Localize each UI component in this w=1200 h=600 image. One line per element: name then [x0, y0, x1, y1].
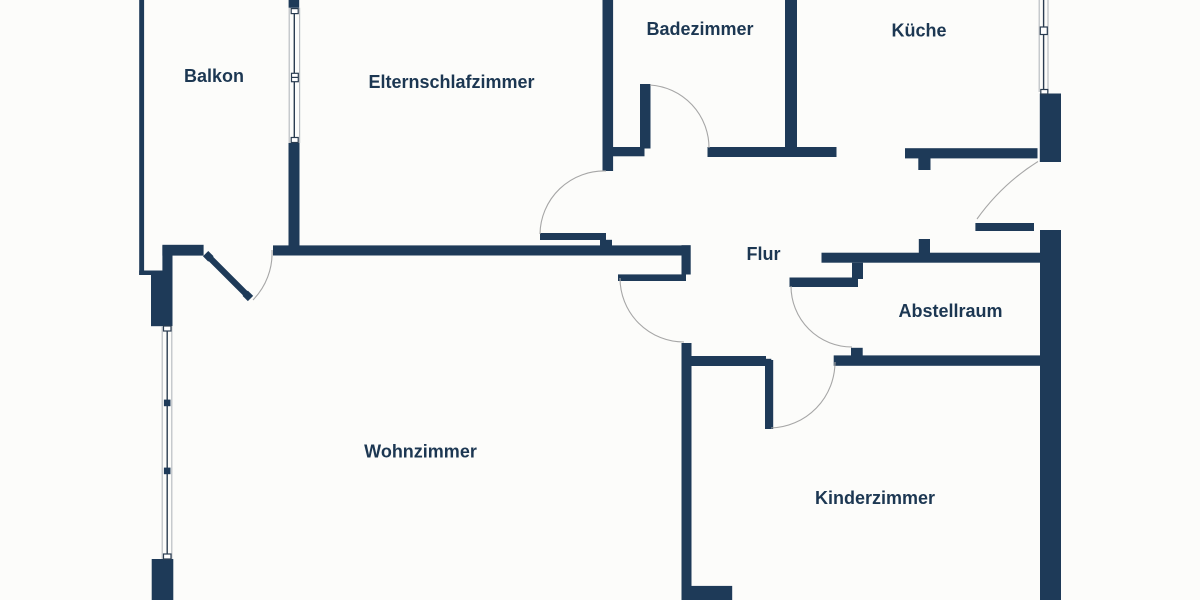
- svg-text:Kinderzimmer: Kinderzimmer: [815, 488, 935, 508]
- svg-text:Küche: Küche: [891, 21, 946, 41]
- svg-text:Balkon: Balkon: [184, 66, 244, 86]
- svg-text:Elternschlafzimmer: Elternschlafzimmer: [368, 72, 534, 92]
- svg-text:Abstellraum: Abstellraum: [898, 301, 1002, 321]
- svg-text:Wohnzimmer: Wohnzimmer: [364, 442, 477, 462]
- svg-text:Flur: Flur: [747, 244, 781, 264]
- svg-text:Badezimmer: Badezimmer: [646, 19, 753, 39]
